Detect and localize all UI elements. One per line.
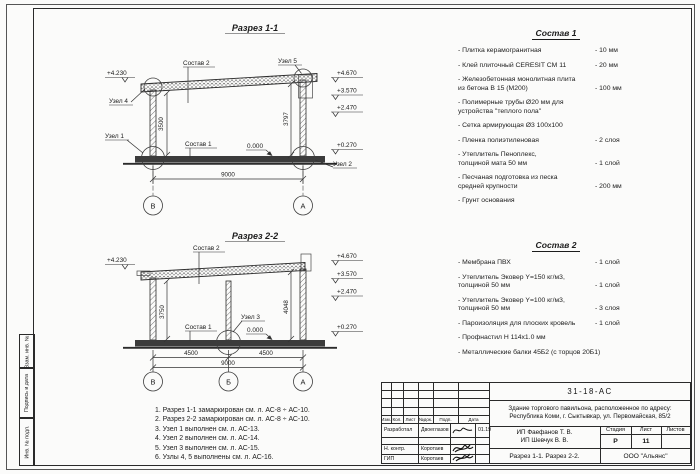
- sostav1-list: Состав 1 - Плитка керамогранитная- 10 мм…: [458, 28, 654, 212]
- elev-4670: +4.670: [337, 70, 357, 77]
- elev-0270: +0.270: [337, 142, 357, 149]
- elev2-4670: +4.670: [337, 253, 357, 260]
- frame-cell-podpis: Подпись и дата: [19, 367, 35, 419]
- col-list: Лист: [403, 415, 418, 423]
- dim-4048: 4048: [283, 300, 290, 314]
- project-description: Здание торгового павильона, расположенно…: [489, 400, 691, 426]
- section1-dim-left: 3500: [158, 90, 170, 158]
- row-nkontr-name: Коротаев: [419, 444, 452, 454]
- label-zero: 0.000: [247, 143, 263, 150]
- dim-4500-b: 4500: [259, 350, 273, 357]
- list-item: - Утеплитель Пеноплекс, толщиной мата 50…: [458, 151, 654, 168]
- sheet-value: 11: [631, 434, 661, 448]
- list-item: - Мембрана ПВХ- 1 слой: [458, 259, 654, 267]
- row-nkontr-role: Н. контр.: [382, 444, 420, 454]
- dim-4500-a: 4500: [184, 350, 198, 357]
- frame-cell-vzam: Взам. инв. №: [19, 334, 35, 369]
- list-item: - Плитка керамогранитная- 10 мм: [458, 47, 654, 55]
- label2-zero: 0.000: [247, 327, 263, 334]
- sostav2-title: Состав 2: [458, 240, 654, 250]
- section1-dim-right: 3797: [283, 81, 294, 158]
- label2-uzel3: Узел 3: [241, 314, 260, 321]
- elev2-4230: +4.230: [107, 257, 127, 264]
- sostav1-title: Состав 1: [458, 28, 654, 38]
- note-line: 6. Узлы 4, 5 выполнены см. л. АС-16.: [155, 453, 390, 462]
- signature-gip: [450, 453, 475, 463]
- col-podp: Подп.: [433, 415, 458, 423]
- elev-4230: +4.230: [107, 70, 127, 77]
- label-sostav1: Состав 1: [185, 141, 212, 148]
- axis-bubble-a2: А: [301, 378, 306, 387]
- frame-label-podpis: Подпись и дата: [24, 374, 30, 412]
- list-item: - Грунт основания: [458, 197, 654, 205]
- section2-dims-bottom: 4500 4500 9000: [150, 350, 306, 372]
- stage-value: Р: [600, 434, 631, 448]
- note-line: 4. Узел 2 выполнен см. л. АС-14.: [155, 434, 390, 443]
- list-item: - Утеплитель Эковер Y=100 кг/м3, толщино…: [458, 297, 654, 314]
- col-data: Дата: [458, 415, 489, 423]
- row-razrabotal-name: Двоеглазов: [419, 423, 452, 437]
- section-2-drawing: Разрез 2-2 3750 4048: [95, 228, 375, 398]
- note-line: 3. Узел 1 выполнен см. л. АС-13.: [155, 425, 390, 434]
- list-item: - Полимерные трубы Ø20 мм для устройства…: [458, 99, 654, 116]
- elev-3570: +3.570: [337, 88, 357, 95]
- note-line: 1. Разрез 1-1 замаркирован см. л. АС-8 ÷…: [155, 406, 390, 415]
- dim-9000: 9000: [221, 172, 235, 179]
- stage-label: Стадия: [600, 426, 631, 434]
- label-sostav2: Состав 2: [183, 60, 210, 67]
- list-item: - Пароизоляция для плоских кровель- 1 сл…: [458, 320, 654, 328]
- list-item: - Клей плиточный CERESIT CM 11- 20 мм: [458, 62, 654, 70]
- row-gip-name: Коротаев: [419, 454, 452, 463]
- label-uzel4: Узел 4: [109, 98, 128, 105]
- doc-number: 31-18-АС: [489, 382, 691, 400]
- list-item: - Пленка полиэтиленовая- 2 слоя: [458, 137, 654, 145]
- axis-bubble-v2: В: [151, 378, 156, 387]
- sheets-value: [661, 434, 690, 448]
- elev2-3570: +3.570: [337, 271, 357, 278]
- list-item: - Металлические балки 45Б2 (с торцов 20Б…: [458, 349, 654, 357]
- section2-axes: В Б А: [144, 372, 313, 391]
- dim-3797: 3797: [283, 112, 290, 126]
- frame-label-inv: Инв. № подл.: [24, 425, 30, 458]
- sheets-label: Листов: [661, 426, 690, 434]
- list-item: - Песчаная подготовка из песка средней к…: [458, 174, 654, 191]
- section1-title: Разрез 1-1: [232, 23, 278, 33]
- list-item: - Профнастил Н 114х1.0 мм: [458, 334, 654, 342]
- signature-razrabotal: [450, 423, 475, 437]
- title-block: Изм. Кол. Лист №док. Подп. Дата Разработ…: [381, 382, 691, 464]
- elev-2470: +2.470: [337, 105, 357, 112]
- section1-structure: [123, 69, 337, 170]
- dim-9000-2: 9000: [221, 360, 235, 367]
- drawing-sheet: Взам. инв. № Подпись и дата Инв. № подл.…: [0, 0, 700, 474]
- clients: ИП Фаефанов Т. В. ИП Шевчук В. В.: [489, 426, 600, 448]
- elev2-2470: +2.470: [337, 289, 357, 296]
- label-uzel2: Узел 2: [333, 161, 352, 168]
- sheet-title: Разрез 1-1. Разрез 2-2.: [489, 448, 600, 464]
- section2-title: Разрез 2-2: [232, 231, 278, 241]
- sheet-label: Лист: [631, 426, 661, 434]
- frame-label-vzam: Взам. инв. №: [24, 335, 30, 368]
- axis-bubble-b2: Б: [226, 378, 231, 387]
- dim-3750: 3750: [159, 305, 166, 319]
- col-izm: Изм.: [381, 415, 391, 423]
- sostav2-list: Состав 2 - Мембрана ПВХ- 1 слой - Утепли…: [458, 240, 654, 363]
- row-razrabotal-role: Разработал: [382, 423, 420, 437]
- company-name: ООО "Альянс": [600, 448, 691, 464]
- section1-callouts: Состав 2 Узел 5 Узел 4 Узел 1 Узел 2 Сос…: [105, 58, 357, 168]
- section2-elevation-marks: +4.670 +3.570 +2.470 +0.270 +4.230: [105, 253, 363, 336]
- section2-structure: [123, 254, 337, 355]
- axis-bubble-a: А: [301, 202, 306, 211]
- section2-dim-left: 3750: [159, 278, 170, 342]
- label2-sostav1: Состав 1: [185, 324, 212, 331]
- elev2-0270: +0.270: [337, 324, 357, 331]
- row-gip-role: ГИП: [382, 454, 420, 463]
- col-kol: Кол.: [391, 415, 403, 423]
- dim-3500: 3500: [158, 117, 165, 131]
- frame-cell-inv: Инв. № подл.: [19, 417, 35, 466]
- note-line: 5. Узел 3 выполнен см. л. АС-15.: [155, 444, 390, 453]
- section1-dim-span: 9000: [150, 166, 306, 184]
- notes-list: 1. Разрез 1-1 замаркирован см. л. АС-8 ÷…: [155, 406, 390, 462]
- axis-bubble-v: В: [151, 202, 156, 211]
- label-uzel1: Узел 1: [105, 133, 124, 140]
- list-item: - Утеплитель Эковер Y=150 кг/м3, толщино…: [458, 274, 654, 291]
- label2-sostav2: Состав 2: [193, 245, 220, 252]
- list-item: - Сетка армирующая Ø3 100х100: [458, 122, 654, 130]
- note-line: 2. Разрез 2-2 замаркирован см. л. АС-8 ÷…: [155, 415, 390, 424]
- section-1-drawing: Разрез 1-1 3500 3797: [95, 18, 375, 223]
- col-ndok: №док.: [418, 415, 433, 423]
- label-uzel5: Узел 5: [278, 58, 297, 65]
- section2-dim-right: 4048: [283, 269, 294, 342]
- list-item: - Железобетонная монолитная плита из бет…: [458, 76, 654, 93]
